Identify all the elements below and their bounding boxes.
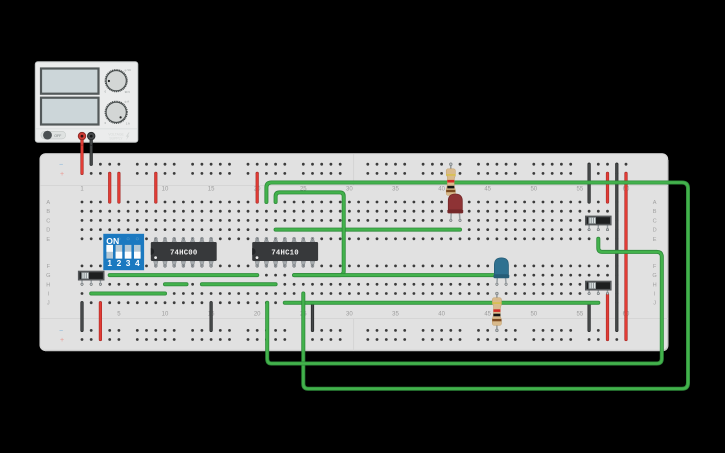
svg-text:4: 4 — [135, 258, 140, 268]
svg-text:E: E — [653, 237, 657, 243]
svg-text:C: C — [653, 218, 657, 224]
svg-text:◎ VC: ◎ VC — [124, 68, 131, 72]
svg-text:50: 50 — [530, 312, 537, 318]
svg-text:2: 2 — [117, 258, 122, 268]
svg-text:15: 15 — [208, 187, 215, 193]
svg-text:ON: ON — [106, 236, 119, 246]
svg-text:50: 50 — [530, 187, 537, 193]
svg-text:30 V: 30 V — [125, 90, 131, 94]
svg-text:−: − — [59, 328, 63, 335]
svg-text:30: 30 — [346, 187, 353, 193]
svg-text:55: 55 — [577, 187, 584, 193]
svg-text:B: B — [46, 209, 50, 215]
svg-text:10: 10 — [162, 187, 169, 193]
svg-text:40: 40 — [438, 312, 445, 318]
svg-text:A: A — [46, 200, 50, 206]
svg-text:40: 40 — [438, 187, 445, 193]
svg-text:+: + — [60, 171, 64, 178]
svg-text:F: F — [47, 264, 51, 270]
svg-text:A: A — [653, 200, 657, 206]
svg-text:30: 30 — [346, 312, 353, 318]
svg-text:G: G — [46, 273, 50, 279]
svg-text:D: D — [46, 228, 50, 234]
svg-text:+: + — [60, 337, 64, 344]
svg-text:10: 10 — [162, 312, 169, 318]
svg-text:20: 20 — [254, 312, 261, 318]
svg-text:3: 3 — [126, 258, 131, 268]
svg-text:35: 35 — [392, 312, 399, 318]
svg-text:H: H — [653, 282, 657, 288]
svg-text:J: J — [47, 301, 50, 307]
svg-text:45: 45 — [484, 187, 491, 193]
svg-text:55: 55 — [577, 312, 584, 318]
svg-text:J: J — [653, 301, 656, 307]
svg-text:◎ A: ◎ A — [124, 100, 129, 104]
svg-text:E: E — [46, 237, 50, 243]
svg-text:74HC00: 74HC00 — [170, 249, 197, 257]
svg-text:35: 35 — [392, 187, 399, 193]
svg-text:74HC10: 74HC10 — [271, 249, 298, 257]
svg-text:OFF: OFF — [54, 134, 62, 138]
svg-text:SUPPLY: SUPPLY — [109, 136, 123, 140]
svg-text:1 A: 1 A — [126, 121, 130, 125]
svg-text:H: H — [46, 282, 50, 288]
svg-text:1: 1 — [107, 258, 112, 268]
svg-text:F: F — [653, 264, 657, 270]
svg-text:G: G — [652, 273, 656, 279]
svg-text:−: − — [59, 162, 63, 169]
svg-text:C: C — [46, 218, 50, 224]
svg-text:45: 45 — [484, 312, 491, 318]
svg-text:D: D — [653, 228, 657, 234]
svg-text:B: B — [653, 209, 657, 215]
